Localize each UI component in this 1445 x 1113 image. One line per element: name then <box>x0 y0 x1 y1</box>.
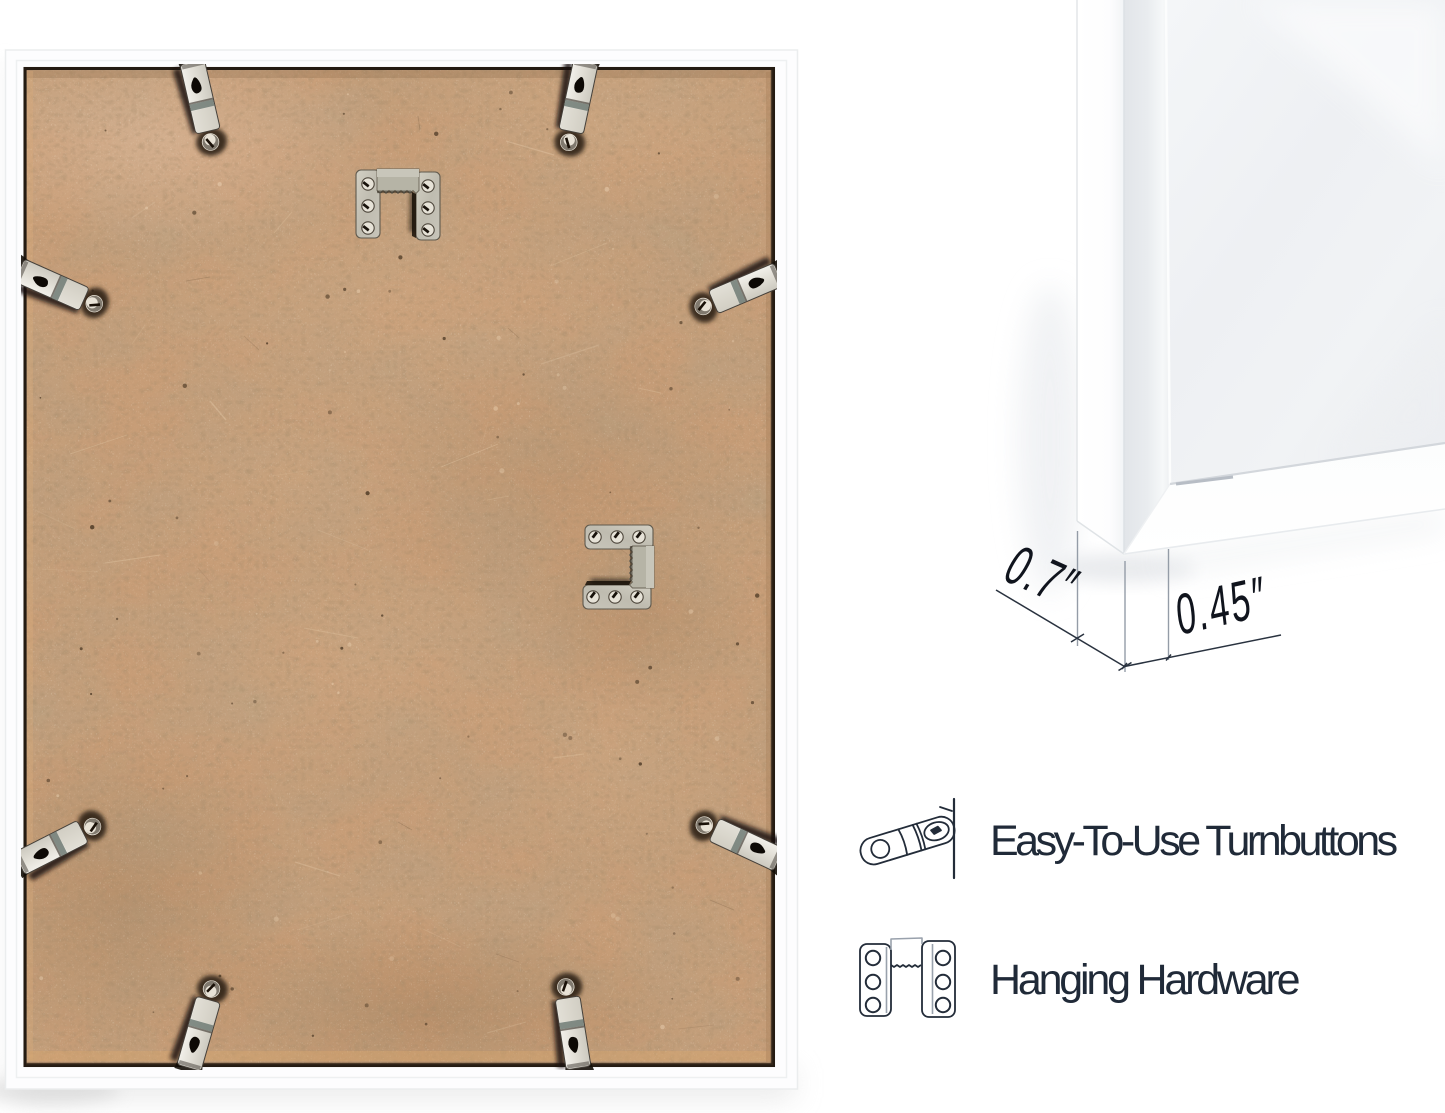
svg-text:Easy-To-Use Turnbuttons: Easy-To-Use Turnbuttons <box>990 817 1397 865</box>
svg-text:Hanging Hardware: Hanging Hardware <box>990 956 1299 1004</box>
